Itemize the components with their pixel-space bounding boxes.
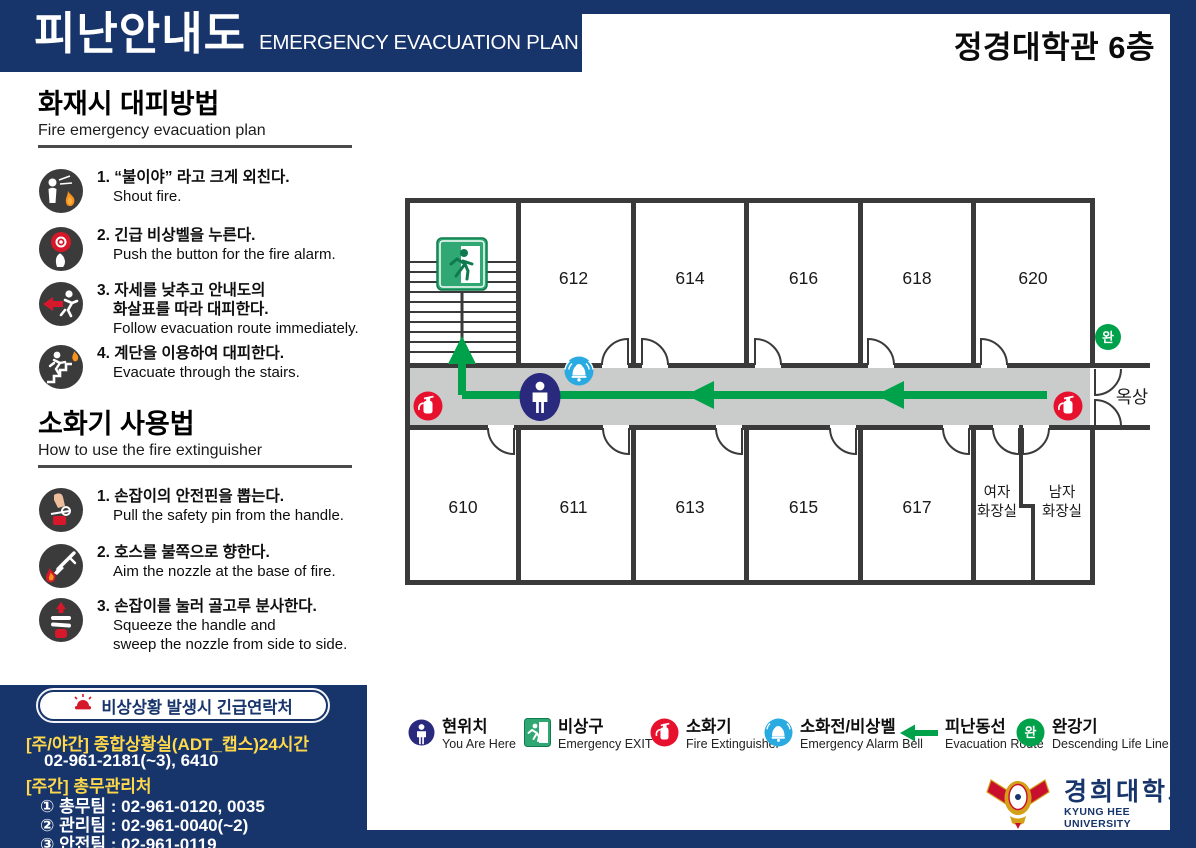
floor-plan: 완 612 614 616 618 620 610 611 613 615 61… [390, 186, 1180, 636]
ext-step-2: 2. 호스를 불쪽으로 향한다. Aim the nozzle at the b… [38, 543, 336, 594]
evacuation-section-header: 화재시 대피방법 Fire emergency evacuation plan [38, 88, 352, 148]
extinguisher-section-subtitle: How to use the fire extinguisher [38, 440, 352, 461]
siren-icon [73, 694, 93, 717]
ext-step-1-ko: 1. 손잡이의 안전핀을 뽑는다. [97, 487, 344, 506]
evac-step-1: 1. “불이야” 라고 크게 외친다. Shout fire. [38, 168, 290, 219]
evacuation-section-subtitle: Fire emergency evacuation plan [38, 120, 352, 141]
ext-step-2-en: Aim the nozzle at the base of fire. [97, 562, 336, 581]
stairs-evacuation-icon [38, 344, 84, 395]
room-label-617: 617 [902, 497, 931, 517]
pull-pin-icon [38, 487, 84, 538]
room-label-616: 616 [789, 268, 818, 288]
descending-life-line-badge: 완 [1095, 324, 1121, 350]
room-label-615: 615 [789, 497, 818, 517]
contact-line-team3: ③ 안전팀 : 02-961-0119 [40, 830, 217, 848]
alarm-bell-icon [764, 718, 793, 752]
extinguisher-section-title: 소화기 사용법 [38, 408, 352, 440]
evac-step-3-en: Follow evacuation route immediately. [97, 319, 359, 338]
you-are-here-icon [520, 373, 561, 421]
contact-badge-label: 비상상황 발생시 긴급연락처 [101, 694, 292, 718]
ext-step-3: 3. 손잡이를 눌러 골고루 분사한다. Squeeze the handle … [38, 597, 347, 654]
ext-step-2-ko: 2. 호스를 불쪽으로 향한다. [97, 543, 336, 562]
toilet-women-label-line1: 여자 [984, 484, 1011, 501]
rooftop-label: 옥상 [1116, 387, 1148, 407]
emergency-exit-icon [524, 718, 551, 752]
university-crest-icon [982, 772, 1054, 835]
toilet-men-label-line1: 남자 [1049, 484, 1076, 501]
evac-step-2: 2. 긴급 비상벨을 누른다. Push the button for the … [38, 226, 336, 277]
extinguisher-section-header: 소화기 사용법 How to use the fire extinguisher [38, 408, 352, 468]
evac-step-1-ko: 1. “불이야” 라고 크게 외친다. [97, 168, 290, 187]
ext-step-3-ko: 3. 손잡이를 눌러 골고루 분사한다. [97, 597, 347, 616]
evac-step-2-en: Push the button for the fire alarm. [97, 245, 336, 264]
aim-nozzle-icon [38, 543, 84, 594]
university-logo: 경희대학교 KYUNG HEE UNIVERSITY [982, 772, 1196, 835]
evacuation-plan-poster: 피난안내도 EMERGENCY EVACUATION PLAN 정경대학관 6층… [0, 0, 1196, 848]
evac-step-1-en: Shout fire. [97, 187, 290, 206]
legend-descending-life-line: 완 완강기 Descending Life Line [1016, 712, 1169, 758]
legend-en: Descending Life Line [1052, 737, 1169, 752]
room-label-614: 614 [675, 268, 704, 288]
contact-line-phone-main: 02-961-2181(~3), 6410 [44, 751, 218, 771]
legend-fire-extinguisher: 소화기 Fire Extinguisher [650, 712, 780, 758]
legend-ko: 비상구 [558, 718, 652, 737]
building-floor-label: 정경대학관 6층 [954, 22, 1155, 67]
legend-ko: 현위치 [442, 718, 516, 737]
alarm-bell-icon [565, 357, 594, 386]
contact-badge: 비상상황 발생시 긴급연락처 [40, 692, 326, 719]
evacuation-section-title: 화재시 대피방법 [38, 88, 352, 120]
evac-step-4-ko: 4. 계단을 이용하여 대피한다. [97, 344, 300, 363]
wan-icon-label: 완 [1025, 725, 1037, 740]
building-floor-label-wrap: 정경대학관 6층 [954, 14, 1155, 74]
toilet-women-label-line2: 화장실 [977, 503, 1017, 520]
emergency-exit-sign [437, 238, 487, 290]
shout-fire-icon [38, 168, 84, 219]
ext-step-3-en: Squeeze the handle and [97, 616, 347, 635]
header: 피난안내도 EMERGENCY EVACUATION PLAN [0, 0, 582, 72]
evac-step-3-ko: 3. 자세를 낮추고 안내도의 [97, 281, 359, 300]
legend-you-are-here: 현위치 You Are Here [408, 712, 516, 758]
fire-extinguisher-icon-left [414, 392, 443, 421]
university-name-korean: 경희대학교 [1064, 778, 1196, 806]
follow-route-icon [38, 281, 84, 332]
fire-extinguisher-icon [650, 718, 679, 752]
you-are-here-icon [408, 719, 435, 751]
toilet-men-label-line2: 화장실 [1042, 503, 1082, 520]
fire-extinguisher-icon-right [1054, 392, 1083, 421]
ext-step-3-en2: sweep the nozzle from side to side. [97, 635, 347, 654]
legend-ko: 완강기 [1052, 718, 1169, 737]
ext-step-1-en: Pull the safety pin from the handle. [97, 506, 344, 525]
evac-step-4-en: Evacuate through the stairs. [97, 363, 300, 382]
legend-emergency-exit: 비상구 Emergency EXIT [524, 712, 652, 758]
university-name-english: KYUNG HEE UNIVERSITY [1064, 806, 1196, 830]
evac-step-3: 3. 자세를 낮추고 안내도의 화살표를 따라 대피한다. Follow eva… [38, 281, 359, 338]
ext-step-1: 1. 손잡이의 안전핀을 뽑는다. Pull the safety pin fr… [38, 487, 344, 538]
wan-badge-label: 완 [1102, 330, 1114, 345]
evac-step-4: 4. 계단을 이용하여 대피한다. Evacuate through the s… [38, 344, 300, 395]
evacuation-route-arrow-icon [900, 724, 938, 747]
poster-title-korean: 피난안내도 [34, 0, 246, 68]
legend-en: Emergency EXIT [558, 737, 652, 752]
legend-en: You Are Here [442, 737, 516, 752]
room-label-610: 610 [448, 497, 477, 517]
squeeze-handle-icon [38, 597, 84, 648]
room-label-618: 618 [902, 268, 931, 288]
emergency-contact-panel: 비상상황 발생시 긴급연락처 [주/야간] 종합상황실(ADT_캡스)24시간 … [0, 685, 367, 848]
descending-life-line-icon: 완 [1016, 718, 1045, 752]
evac-step-2-ko: 2. 긴급 비상벨을 누른다. [97, 226, 336, 245]
alarm-button-icon [38, 226, 84, 277]
room-label-613: 613 [675, 497, 704, 517]
section-divider [38, 145, 352, 148]
section-divider [38, 465, 352, 468]
evac-step-3-ko2: 화살표를 따라 대피한다. [97, 300, 359, 319]
room-label-611: 611 [560, 497, 588, 517]
poster-title-english: EMERGENCY EVACUATION PLAN [259, 31, 578, 55]
room-label-620: 620 [1018, 268, 1047, 288]
room-label-612: 612 [559, 268, 588, 288]
